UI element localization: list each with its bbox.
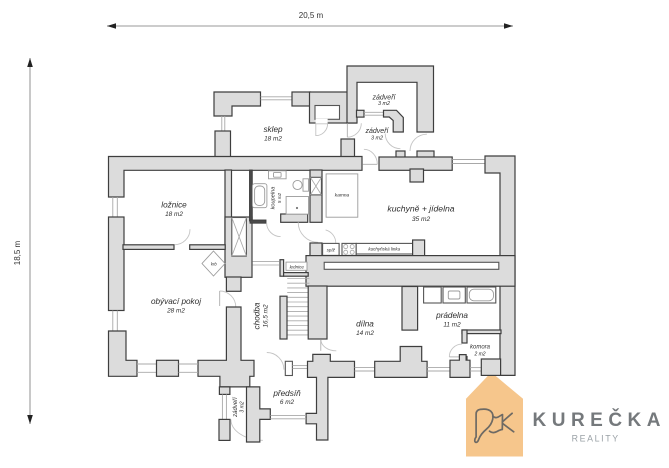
svg-text:18,5 m: 18,5 m <box>13 240 22 265</box>
svg-text:dílna: dílna <box>356 320 374 329</box>
svg-text:3 m2: 3 m2 <box>240 401 246 412</box>
svg-text:3 m2: 3 m2 <box>371 136 383 142</box>
svg-text:koupelna: koupelna <box>271 187 277 210</box>
svg-text:zádveří: zádveří <box>365 128 390 135</box>
svg-text:spíž: spíž <box>327 248 336 253</box>
svg-text:prádelna: prádelna <box>435 311 468 320</box>
svg-text:2 m2: 2 m2 <box>473 352 485 358</box>
svg-text:ložnice: ložnice <box>161 201 187 210</box>
svg-text:chodba: chodba <box>253 302 262 329</box>
svg-text:kuchyně + jídelna: kuchyně + jídelna <box>387 204 454 214</box>
svg-text:3 m2: 3 m2 <box>378 101 390 107</box>
svg-text:20,5 m: 20,5 m <box>299 11 324 20</box>
svg-text:obývací pokoj: obývací pokoj <box>151 297 201 306</box>
svg-text:krb: krb <box>211 262 217 267</box>
svg-text:11 m2: 11 m2 <box>443 322 461 329</box>
svg-text:18 m2: 18 m2 <box>264 136 282 143</box>
svg-text:KUREČKA: KUREČKA <box>533 409 667 431</box>
svg-text:16,5 m2: 16,5 m2 <box>263 304 270 328</box>
svg-text:předsíň: předsíň <box>272 389 301 398</box>
svg-text:28 m2: 28 m2 <box>166 308 185 315</box>
svg-text:18 m2: 18 m2 <box>165 211 183 218</box>
svg-text:kuchyňská linka: kuchyňská linka <box>368 247 400 252</box>
svg-text:14 m2: 14 m2 <box>356 330 374 337</box>
svg-text:lednice: lednice <box>290 264 305 269</box>
svg-text:kamna: kamna <box>335 193 350 199</box>
svg-text:zádveří: zádveří <box>233 396 239 418</box>
svg-text:komora: komora <box>470 345 491 351</box>
svg-text:6 m2: 6 m2 <box>280 399 295 406</box>
svg-text:35 m2: 35 m2 <box>412 216 431 223</box>
svg-text:REALITY: REALITY <box>572 434 620 444</box>
svg-text:sklep: sklep <box>263 125 283 134</box>
svg-text:5 m2: 5 m2 <box>277 192 282 203</box>
